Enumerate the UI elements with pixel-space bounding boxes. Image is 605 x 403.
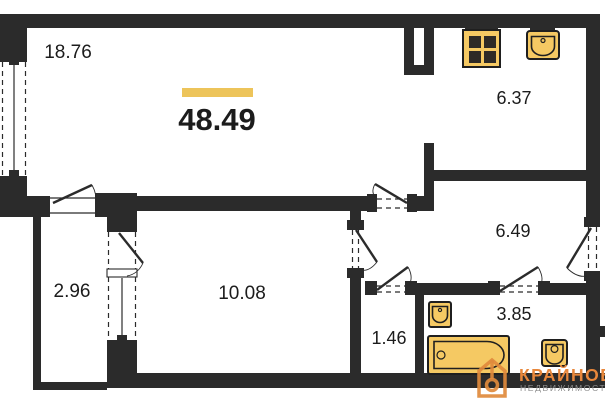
wall-segment bbox=[550, 283, 586, 295]
wall-segment bbox=[424, 143, 434, 211]
door-jamb bbox=[407, 194, 417, 212]
wall-segment bbox=[417, 283, 488, 295]
wall-segment bbox=[95, 193, 137, 217]
wall-segment bbox=[107, 217, 137, 232]
door-jamb bbox=[347, 268, 364, 278]
total-area-label: 48.49 bbox=[178, 102, 256, 137]
door-jamb bbox=[347, 220, 364, 230]
door-jamb bbox=[367, 194, 377, 212]
wall-segment bbox=[33, 217, 41, 390]
window-tick bbox=[117, 335, 127, 342]
wall-segment bbox=[107, 340, 137, 388]
brand-subtitle: НЕДВИЖИМОСТЬ bbox=[520, 383, 605, 393]
wall-segment bbox=[33, 382, 107, 390]
door-entrance bbox=[567, 227, 597, 276]
toilet-icon bbox=[542, 340, 567, 366]
wall-segment bbox=[0, 14, 600, 28]
window-tick bbox=[9, 58, 19, 65]
room-area-living: 18.76 bbox=[44, 42, 92, 63]
room-area-bathroom: 3.85 bbox=[496, 304, 531, 324]
wall-segment bbox=[0, 176, 27, 217]
door-living-hall bbox=[373, 184, 407, 208]
window-sill bbox=[107, 269, 137, 277]
door-jamb bbox=[538, 281, 550, 295]
floor-plan: 48.49 18.76 6.37 6.49 10.08 2.96 1.46 3.… bbox=[0, 0, 605, 403]
room-area-kitchen: 6.37 bbox=[496, 88, 531, 108]
walls bbox=[0, 14, 605, 390]
brand-name: КРАЙНОВ bbox=[519, 364, 605, 385]
door-jamb bbox=[405, 281, 417, 295]
door-bathroom bbox=[500, 267, 542, 292]
room-area-room: 10.08 bbox=[218, 283, 266, 304]
window-left bbox=[3, 58, 26, 177]
vent-shaft bbox=[404, 28, 434, 75]
room-area-loggia: 2.96 bbox=[54, 281, 91, 302]
wall-segment bbox=[434, 170, 586, 181]
room-area-hallway: 6.49 bbox=[495, 221, 530, 241]
wall-segment bbox=[350, 204, 361, 220]
room-area-storage: 1.46 bbox=[371, 328, 406, 348]
bathroom-sink-icon bbox=[429, 302, 451, 327]
door-hall-room bbox=[353, 230, 378, 270]
wall-segment bbox=[350, 278, 361, 388]
door-loggia bbox=[50, 185, 96, 213]
door-jamb bbox=[365, 281, 377, 295]
door-jamb bbox=[584, 217, 600, 227]
kitchen-sink-icon bbox=[527, 25, 559, 59]
wall-segment bbox=[586, 326, 605, 337]
wall-segment bbox=[137, 196, 367, 211]
wall-segment bbox=[0, 14, 27, 62]
wall-segment bbox=[586, 14, 600, 217]
window-tick bbox=[9, 170, 19, 177]
bathtub-icon bbox=[428, 336, 509, 374]
wall-segment bbox=[27, 196, 50, 217]
stove-icon bbox=[463, 25, 500, 67]
total-area-highlight bbox=[182, 88, 253, 97]
wall-segment bbox=[404, 65, 434, 75]
floor-plan-page: 48.49 18.76 6.37 6.49 10.08 2.96 1.46 3.… bbox=[0, 0, 605, 403]
door-jamb bbox=[488, 281, 500, 295]
window-loggia bbox=[107, 269, 137, 342]
